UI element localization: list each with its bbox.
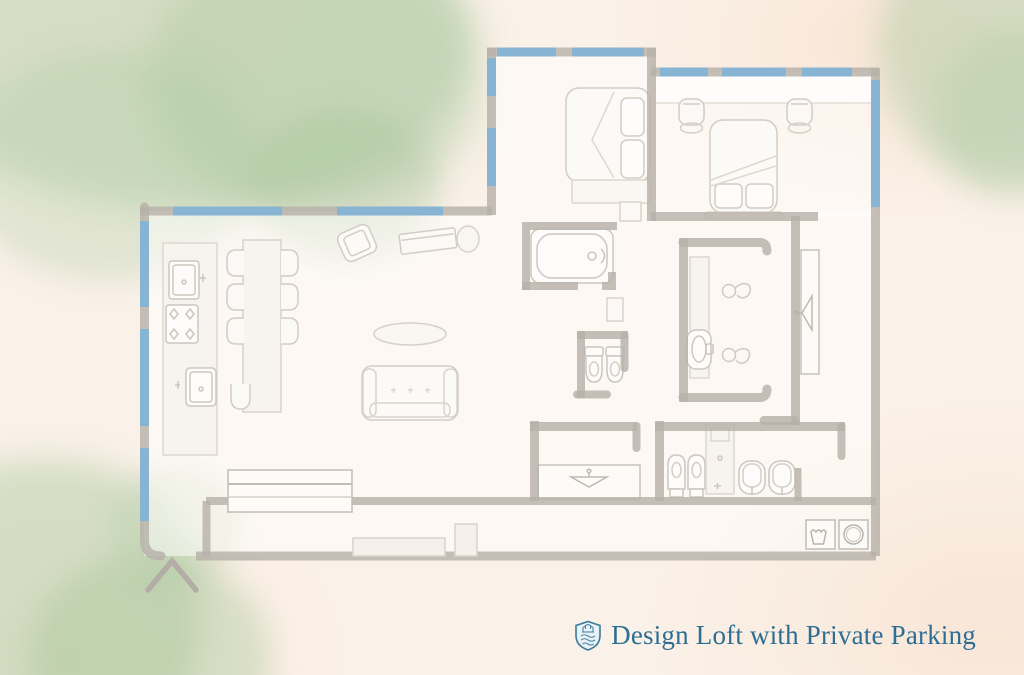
bathtub-icon bbox=[531, 229, 613, 283]
double-bed-icon bbox=[566, 88, 650, 203]
wardrobe bbox=[538, 465, 640, 499]
entrance-chevron-icon bbox=[148, 561, 196, 590]
sofa-icon bbox=[362, 366, 458, 420]
brand-caption: Design Loft with Private Parking bbox=[574, 620, 976, 651]
bidet-icon bbox=[769, 461, 795, 495]
pouf-icon bbox=[457, 226, 479, 252]
bidet-icon bbox=[688, 455, 705, 497]
shower-icon bbox=[706, 424, 734, 494]
washer-icon bbox=[806, 520, 835, 549]
poster-title: Design Loft with Private Parking bbox=[611, 620, 976, 651]
stove-icon bbox=[166, 305, 198, 343]
coffee-table-icon bbox=[374, 323, 446, 345]
floor-plan bbox=[0, 0, 1024, 675]
toilet-icon bbox=[668, 455, 685, 497]
shield-crest-logo bbox=[574, 620, 602, 651]
toilet-icon bbox=[585, 347, 603, 382]
floor-plan-poster: Design Loft with Private Parking bbox=[0, 0, 1024, 675]
toilet-icon bbox=[739, 461, 765, 495]
vanity-sink-icon bbox=[687, 257, 713, 378]
double-bed-icon bbox=[705, 120, 782, 219]
dryer-icon bbox=[839, 520, 868, 549]
entrance-bench-icon bbox=[228, 470, 352, 512]
